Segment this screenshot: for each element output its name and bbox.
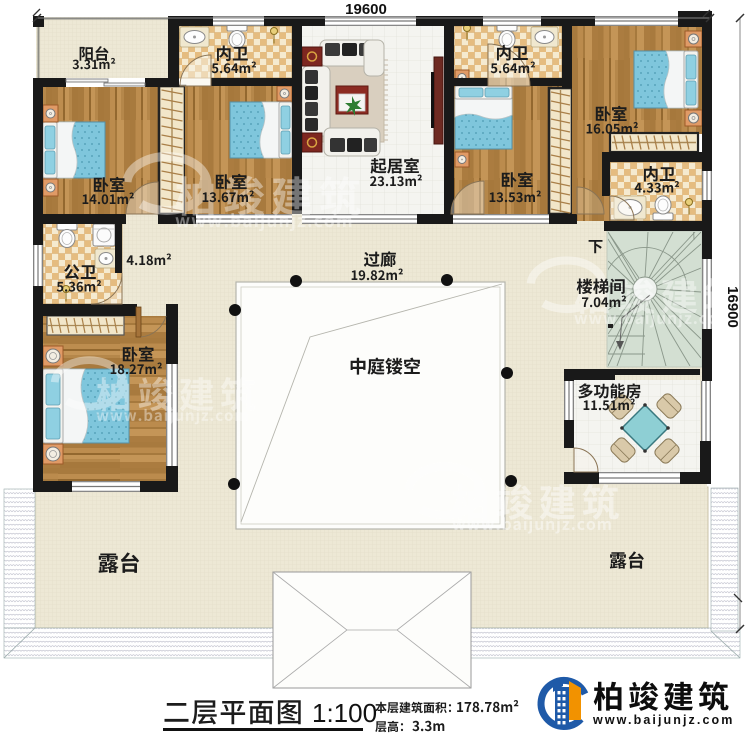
svg-text:1:100: 1:100 — [312, 698, 377, 728]
svg-text:19600: 19600 — [345, 1, 387, 18]
svg-text:16900: 16900 — [724, 286, 741, 328]
svg-text:www.baijunjz.com: www.baijunjz.com — [592, 713, 734, 727]
